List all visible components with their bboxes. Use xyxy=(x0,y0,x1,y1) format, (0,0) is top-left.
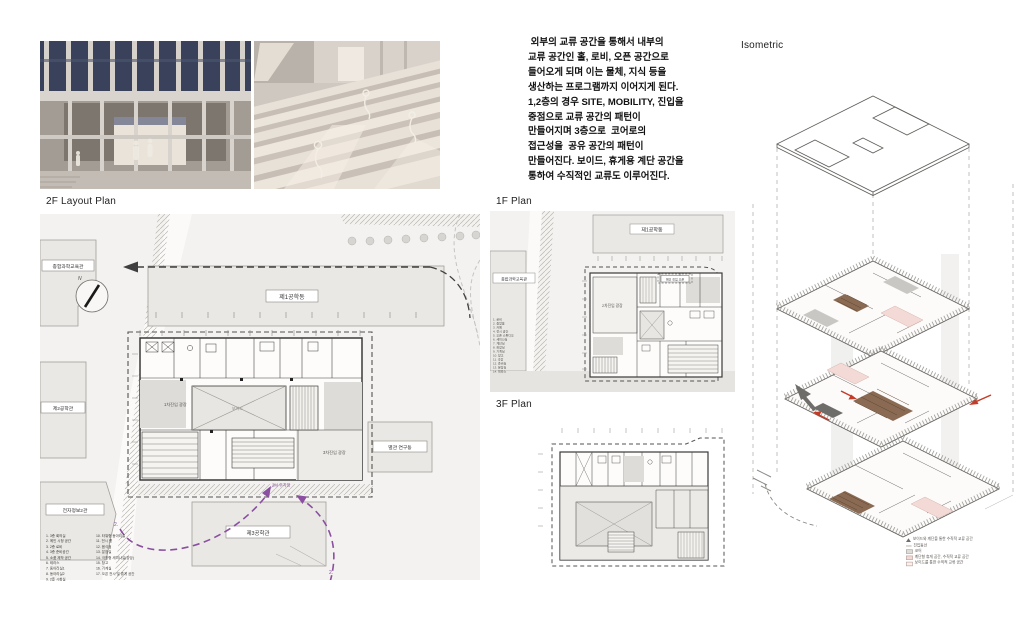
desc-line: 교류 공간인 홀, 로비, 오픈 공간으로 xyxy=(528,51,740,66)
plan3f-title: 3F Plan xyxy=(496,399,532,410)
label-parking: 2M 주차장 xyxy=(272,482,291,489)
legend-label: 보이드를 통한 수직적 교류 공간 xyxy=(915,561,964,567)
desc-line: 들어오게 되며 이는 물체, 지식 등을 xyxy=(528,66,740,81)
desc-line: 만들어진다. 보이드, 휴게용 계단 공간을 xyxy=(528,155,740,170)
arrow-number-left: 2. xyxy=(114,522,118,528)
label-hall-1f: 제1공학동 xyxy=(641,227,663,234)
label-eng3: 제3공학관 xyxy=(247,529,270,537)
plan1f-title: 1F Plan xyxy=(496,196,532,207)
render-image-exterior xyxy=(40,41,251,189)
render-image-stairs xyxy=(254,41,440,189)
arrow-marker-icon xyxy=(906,538,911,542)
legend-line: 14. 테라스 xyxy=(493,370,514,374)
desc-line: 중점으로 교류 공간의 패턴이 xyxy=(528,111,740,126)
plan2f-legend-col2: 10. 타워형 동아리실 11. 전시 룸 12. 음식점 13. 분장실 14… xyxy=(96,534,134,578)
label-void: 보이드 xyxy=(232,405,243,411)
main-building-2f xyxy=(140,338,362,480)
label-plaza1: 1차진입 광장 xyxy=(164,401,187,408)
label-entry-1f: 메인 진입 오픈 xyxy=(666,276,684,281)
desc-line: 외부의 교류 공간을 통해서 내부의 xyxy=(528,36,740,51)
label-edu-1f: 종합과학교육관 xyxy=(501,275,527,281)
arrow-number-right: 2. xyxy=(329,570,333,576)
presentation-board: 외부의 교류 공간을 통해서 내부의 교류 공간인 홀, 로비, 오픈 공간으로… xyxy=(0,0,1021,624)
plan2f-title: 2F Layout Plan xyxy=(46,196,116,207)
desc-line: 1,2층의 경우 SITE, MOBILITY, 진입을 xyxy=(528,96,740,111)
desc-line: 생산하는 프로그램까지 이어지게 된다. xyxy=(528,81,740,96)
description-text: 외부의 교류 공간을 통해서 내부의 교류 공간인 홀, 로비, 오픈 공간으로… xyxy=(528,36,740,185)
line-marker-icon xyxy=(906,546,912,547)
label-hall: 제1공학동 xyxy=(279,293,305,301)
floor-plan-3f xyxy=(490,414,735,590)
plan1f-legend: 1. 로비 2. 중앙홀 3. 카페 4. 전시 공간 5. 오픈 스튜디오 6… xyxy=(493,318,514,374)
legend-line: 17. 오픈 전시 및 휴게 공간 xyxy=(96,572,134,577)
pink-swatch-icon xyxy=(906,556,913,560)
plan2f-legend-col1: 1. 3층 회의실 2. 메인 시청 공간 3. 2층 로비 4. 3층 준비공… xyxy=(46,534,71,583)
floor-2f xyxy=(785,348,991,447)
desc-line: 접근성을 공유 공간의 패턴이 xyxy=(528,140,740,155)
main-building-1f: 메인 진입 오픈 xyxy=(590,273,722,377)
site-plan-2f: 제1공학동 종합과학교육관 제2공학관 전자정보2관 제3공학관 별관 연구동 … xyxy=(40,214,480,580)
floor-1f xyxy=(753,438,1013,537)
legend-row: 보이드를 통한 수직적 교류 공간 xyxy=(906,561,973,567)
desc-line: 통하여 수직적인 교류도 이루어진다. xyxy=(528,170,740,185)
isometric-title: Isometric xyxy=(741,40,783,51)
label-plaza3: 3차진입 광장 xyxy=(323,449,346,456)
label-edu: 종합과학교육관 xyxy=(53,263,84,270)
main-building-3f xyxy=(560,452,708,560)
legend-line: 9. 2층 시청실 xyxy=(46,578,71,583)
floor-plan-1f: 제1공학동 종합과학교육관 메인 진입 오픈 xyxy=(490,211,735,392)
isometric-drawing xyxy=(745,54,1021,590)
floor-3f xyxy=(777,258,969,357)
label-plaza2: 2차진입 광장 xyxy=(602,303,623,308)
label-info: 전자정보2관 xyxy=(63,507,88,514)
label-eng2: 제2공학관 xyxy=(53,405,74,412)
isometric-legend: 보이드와 계단을 통한 수직적 교류 공간 진입동선 코어 계단형 휴게 공간,… xyxy=(906,537,973,567)
desc-line: 만들어지며 3층으로 코어로의 xyxy=(528,125,740,140)
core-swatch-icon xyxy=(906,550,913,554)
void-swatch-icon xyxy=(906,562,913,566)
roof-plate xyxy=(777,96,969,196)
legend-line: 4. 3층 준비공간 xyxy=(46,550,71,555)
compass-n: N xyxy=(78,276,82,282)
label-annex: 별관 연구동 xyxy=(388,444,412,451)
